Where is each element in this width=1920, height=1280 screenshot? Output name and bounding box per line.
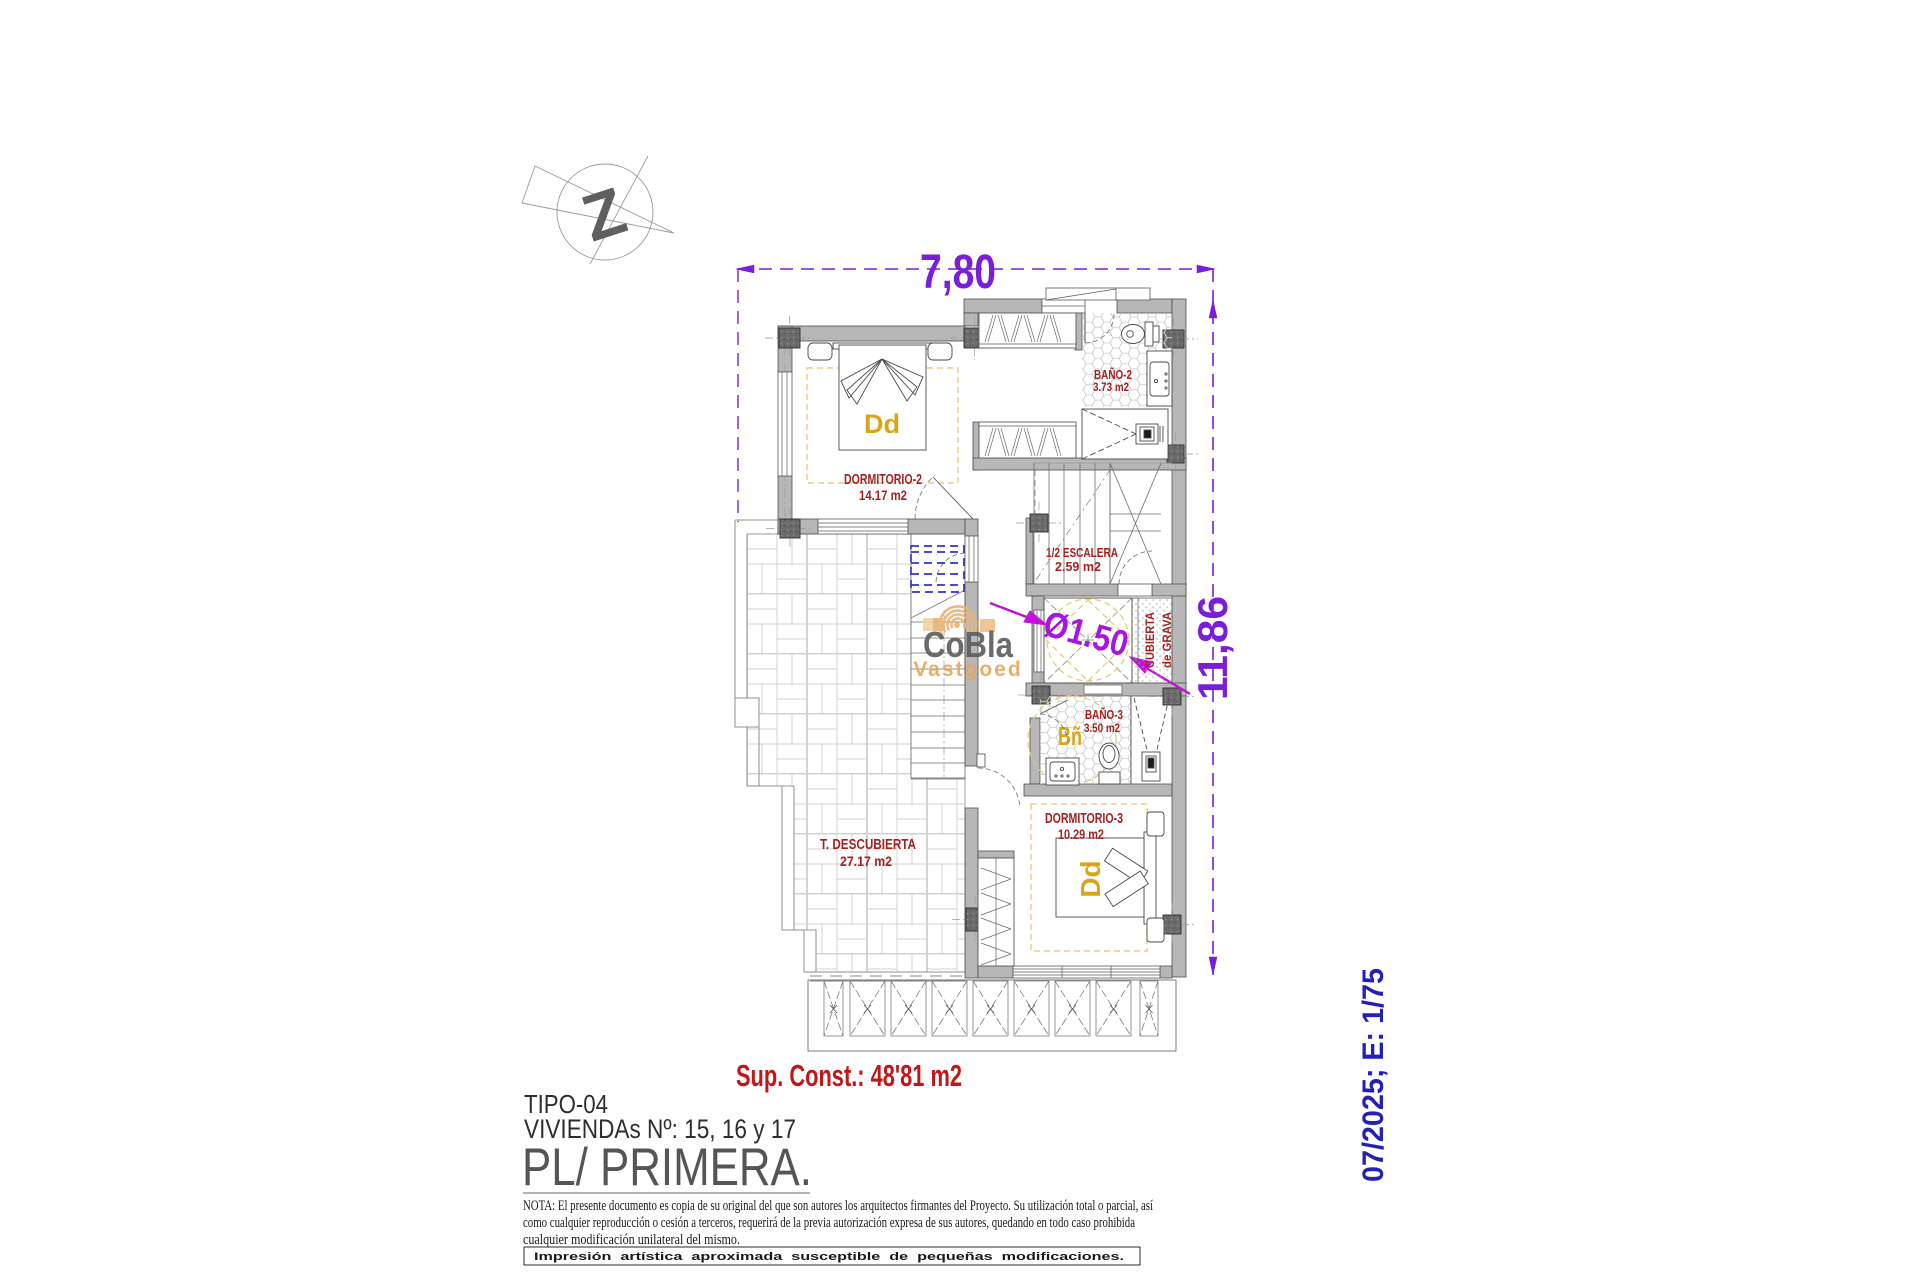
- svg-text:14.17 m2: 14.17 m2: [859, 487, 907, 503]
- svg-text:T. DESCUBIERTA: T. DESCUBIERTA: [820, 837, 916, 853]
- svg-text:7,80: 7,80: [920, 246, 996, 299]
- svg-text:BAÑO-3: BAÑO-3: [1085, 707, 1123, 722]
- svg-text:Sup. Const.: 48'81 m2: Sup. Const.: 48'81 m2: [736, 1058, 962, 1093]
- svg-text:3.50 m2: 3.50 m2: [1084, 721, 1120, 735]
- svg-text:Dd: Dd: [1075, 860, 1106, 897]
- svg-text:10.29 m2: 10.29 m2: [1058, 826, 1104, 842]
- svg-text:DORMITORIO-3: DORMITORIO-3: [1045, 811, 1123, 827]
- svg-text:DORMITORIO-2: DORMITORIO-2: [844, 472, 922, 488]
- svg-text:11,86: 11,86: [1189, 596, 1236, 700]
- svg-text:Impresión artística aproxima: Impresión artística aproximada susceptib…: [534, 1251, 1124, 1263]
- svg-text:NOTA: El presente documento es: NOTA: El presente documento es copia de …: [523, 1198, 1153, 1214]
- svg-text:PL/ PRIMERA.: PL/ PRIMERA.: [522, 1138, 812, 1197]
- svg-text:CUBIERTA: CUBIERTA: [1143, 612, 1157, 668]
- svg-text:de GRAVA: de GRAVA: [1160, 612, 1174, 668]
- svg-text:Vastgoed: Vastgoed: [913, 658, 1022, 681]
- svg-text:1/2 ESCALERA: 1/2 ESCALERA: [1046, 545, 1118, 560]
- svg-text:cualquier modificación unilate: cualquier modificación unilateral del mi…: [523, 1232, 740, 1248]
- svg-text:Dd: Dd: [864, 409, 900, 439]
- svg-text:27.17 m2: 27.17 m2: [840, 853, 892, 869]
- svg-text:07/2025; E: 1/75: 07/2025; E: 1/75: [1357, 968, 1390, 1182]
- svg-text:3.73 m2: 3.73 m2: [1093, 380, 1129, 394]
- svg-text:como cualquier reproducción o: como cualquier reproducción o cesión a t…: [523, 1215, 1135, 1231]
- svg-text:2.59 m2: 2.59 m2: [1055, 560, 1101, 574]
